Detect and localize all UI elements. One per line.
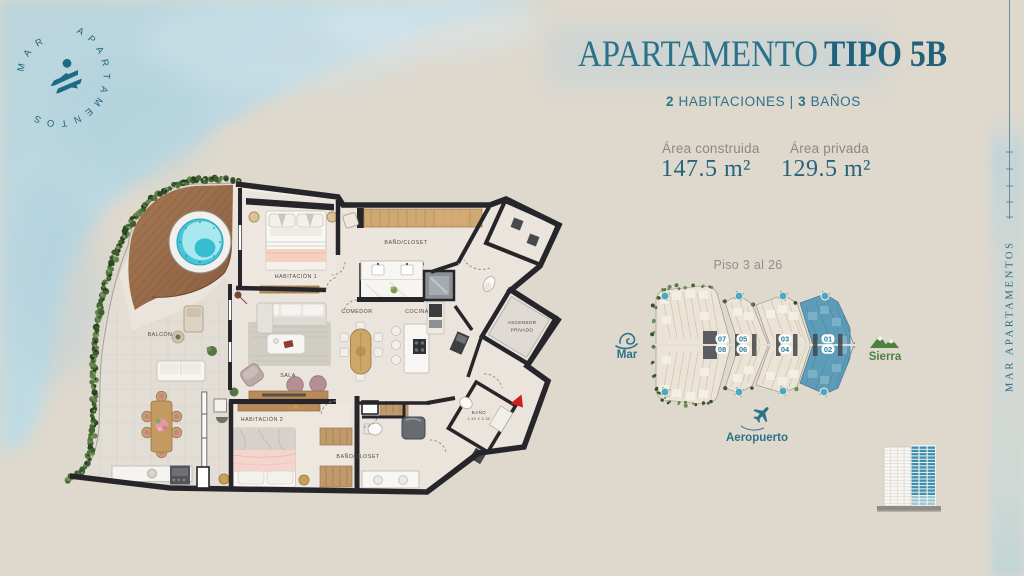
svg-text:BAÑO/CLOSET: BAÑO/CLOSET	[336, 453, 379, 460]
svg-text:HABITACIÓN 2: HABITACIÓN 2	[241, 416, 283, 423]
svg-text:1.40 X 2.30: 1.40 X 2.30	[468, 417, 491, 421]
svg-text:O: O	[46, 117, 55, 129]
svg-text:06: 06	[739, 345, 747, 354]
svg-text:Área privada: Área privada	[790, 141, 869, 156]
svg-text:APARTAMENTO: APARTAMENTO	[578, 34, 818, 75]
svg-text:BAÑO: BAÑO	[472, 410, 487, 415]
svg-text:03: 03	[781, 334, 789, 343]
svg-text:HABITACIÓN 1: HABITACIÓN 1	[275, 273, 317, 280]
svg-text:MAR APARTAMENTOS: MAR APARTAMENTOS	[1005, 240, 1016, 392]
svg-text:Sierra: Sierra	[869, 351, 902, 363]
svg-text:07: 07	[718, 334, 726, 343]
svg-text:T: T	[100, 73, 111, 79]
svg-text:04: 04	[781, 345, 790, 354]
svg-text:TIPO 5B: TIPO 5B	[824, 34, 947, 75]
svg-text:08: 08	[718, 345, 726, 354]
svg-text:BAÑO/CLOSET: BAÑO/CLOSET	[384, 239, 427, 246]
svg-text:2 HABITACIONES | 3 BAÑOS: 2 HABITACIONES | 3 BAÑOS	[666, 94, 861, 109]
svg-text:BALCÓN: BALCÓN	[148, 331, 173, 338]
svg-text:COMEDOR: COMEDOR	[341, 309, 372, 315]
svg-text:PRIVADO: PRIVADO	[511, 328, 534, 334]
svg-text:02: 02	[824, 345, 832, 354]
svg-text:Área construida: Área construida	[662, 141, 760, 156]
svg-text:ASCENSOR: ASCENSOR	[508, 320, 537, 326]
svg-text:Aeropuerto: Aeropuerto	[726, 432, 788, 444]
svg-text:SALA: SALA	[280, 373, 296, 379]
svg-text:129.5 m²: 129.5 m²	[781, 156, 871, 182]
svg-text:05: 05	[739, 334, 747, 343]
svg-text:147.5 m²: 147.5 m²	[661, 156, 751, 182]
svg-text:Mar: Mar	[617, 349, 638, 361]
svg-text:01: 01	[824, 334, 832, 343]
svg-text:COCINA: COCINA	[405, 309, 429, 315]
svg-text:Piso 3 al 26: Piso 3 al 26	[714, 258, 783, 272]
